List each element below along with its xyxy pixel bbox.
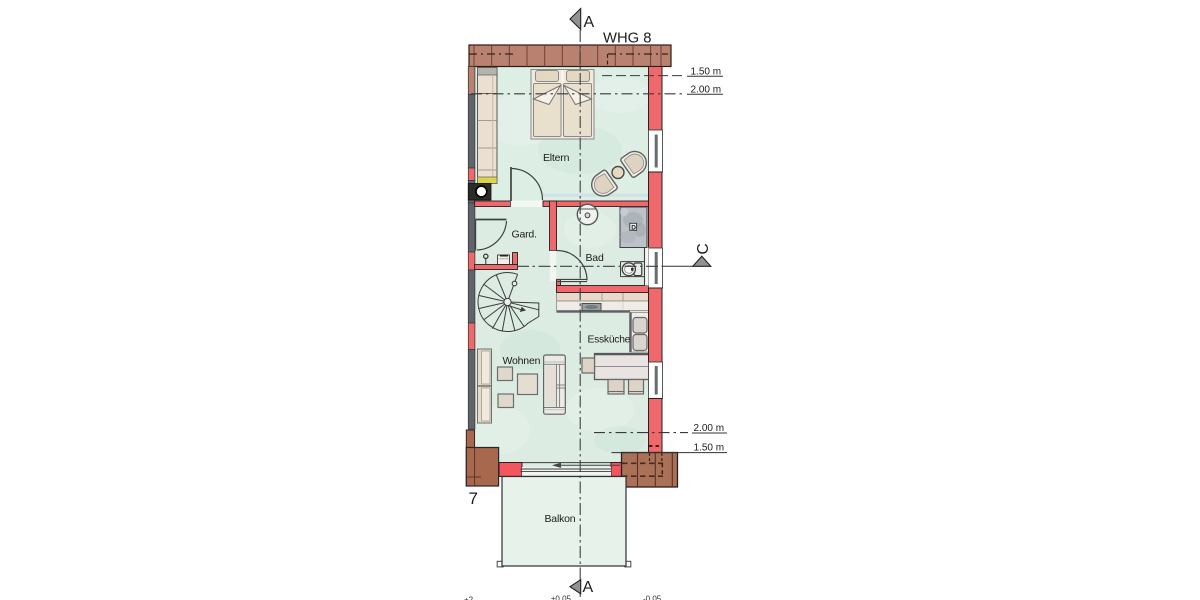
svg-text:Balkon: Balkon [545,513,576,525]
svg-text:1.50 m: 1.50 m [694,442,725,453]
svg-text:+2: +2 [464,596,474,600]
svg-text:Gard.: Gard. [512,229,537,241]
svg-text:1.50 m: 1.50 m [691,66,722,77]
svg-text:C: C [695,243,712,254]
svg-text:A: A [584,14,595,31]
svg-text:2.00 m: 2.00 m [691,84,722,95]
svg-text:WHG 8: WHG 8 [603,31,652,47]
svg-text:Wohnen: Wohnen [503,355,541,367]
svg-text:A: A [583,579,594,596]
svg-text:±0.05: ±0.05 [551,595,572,600]
svg-text:7: 7 [469,489,478,508]
svg-text:Essküche: Essküche [588,335,631,346]
svg-text:Bad: Bad [586,252,604,264]
svg-text:D: D [631,224,636,231]
svg-text:-0.05: -0.05 [643,595,662,600]
svg-text:2.00 m: 2.00 m [694,423,725,434]
svg-text:Eltern: Eltern [543,152,570,164]
